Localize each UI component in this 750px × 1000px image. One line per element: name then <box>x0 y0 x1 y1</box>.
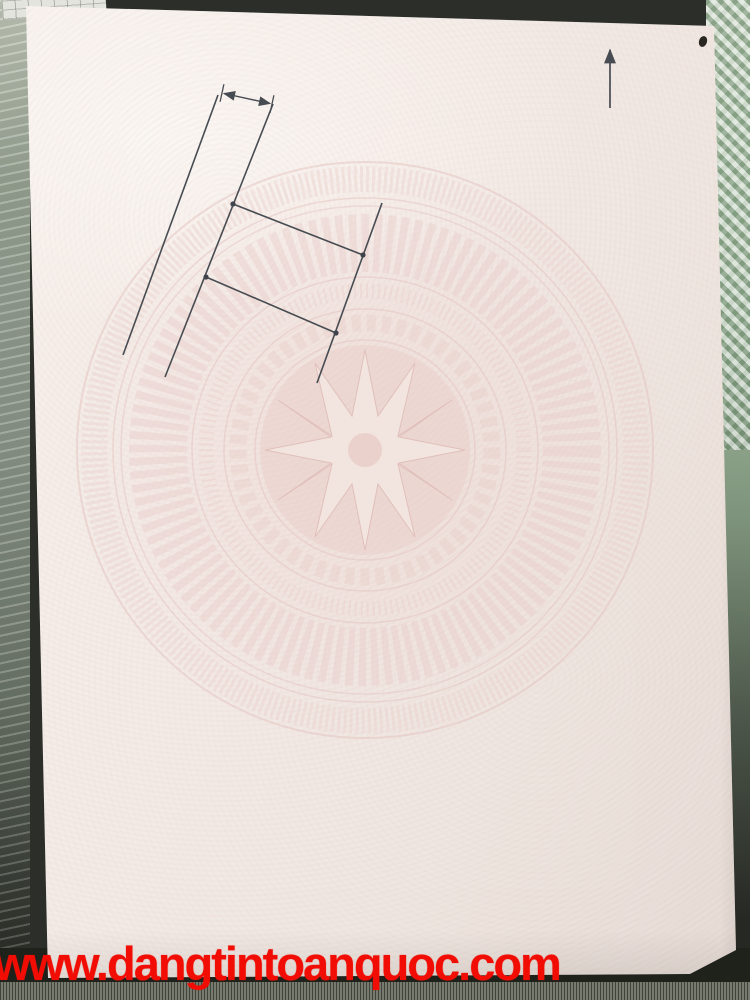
dimension-tick-right <box>270 95 274 113</box>
vertex-dot-3 <box>333 330 338 335</box>
dimension-line <box>224 94 270 104</box>
vertex-dot-4 <box>203 274 208 279</box>
plot-edge-1-2 <box>233 204 363 255</box>
vertex-dot-2 <box>360 252 365 257</box>
vertex-dot-1 <box>230 201 235 206</box>
plot-edge-3-4 <box>206 277 336 333</box>
plot-diagram <box>0 0 750 1000</box>
alley-edge-right <box>165 104 273 377</box>
dimension-tick-left <box>220 84 224 102</box>
boundary-line-through-2-3 <box>317 203 382 383</box>
site-watermark: www.dangtintoanquoc.com <box>0 936 750 991</box>
alley-edge-left <box>123 95 218 355</box>
photographed-certificate-page: 4. Sơ đồ thửa đất, tài sản gắn liền với … <box>0 0 750 1000</box>
